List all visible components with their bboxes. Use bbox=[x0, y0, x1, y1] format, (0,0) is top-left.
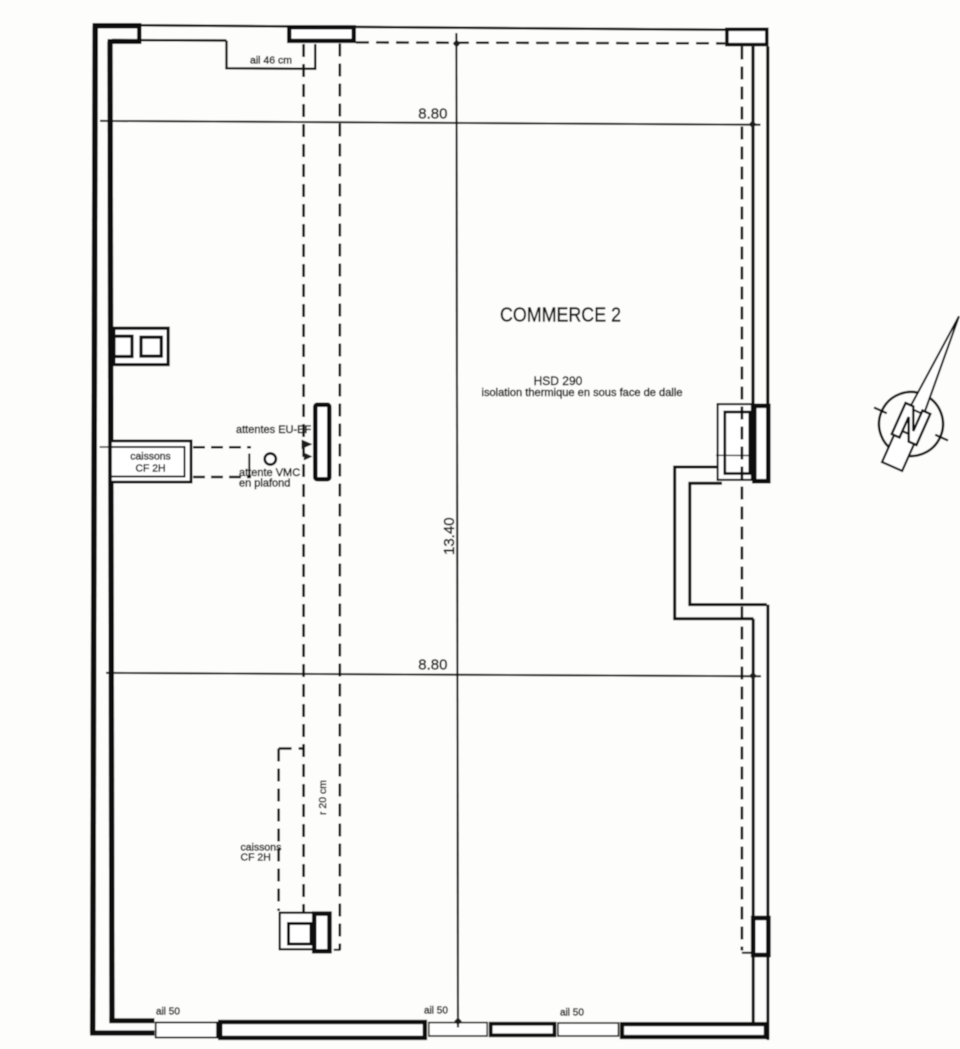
svg-text:8.80: 8.80 bbox=[418, 105, 447, 122]
svg-text:r 20 cm: r 20 cm bbox=[317, 780, 329, 815]
svg-text:ail 50: ail 50 bbox=[560, 1008, 584, 1019]
svg-text:ail 50: ail 50 bbox=[424, 1006, 448, 1017]
svg-text:caissons: caissons bbox=[130, 452, 170, 463]
svg-text:CF 2H: CF 2H bbox=[135, 464, 165, 475]
svg-text:ail 50: ail 50 bbox=[156, 1007, 180, 1018]
svg-text:attentes EU-EF: attentes EU-EF bbox=[236, 424, 311, 436]
svg-text:COMMERCE 2: COMMERCE 2 bbox=[500, 305, 621, 327]
svg-text:8.80: 8.80 bbox=[418, 656, 447, 673]
svg-text:isolation thermique en sous fa: isolation thermique en sous face de dall… bbox=[482, 387, 683, 399]
svg-text:CF 2H: CF 2H bbox=[241, 852, 271, 864]
svg-text:HSD 290: HSD 290 bbox=[534, 374, 583, 388]
svg-text:ail 46 cm: ail 46 cm bbox=[250, 55, 292, 67]
svg-text:en plafond: en plafond bbox=[239, 478, 290, 490]
svg-text:13.40: 13.40 bbox=[441, 517, 458, 555]
